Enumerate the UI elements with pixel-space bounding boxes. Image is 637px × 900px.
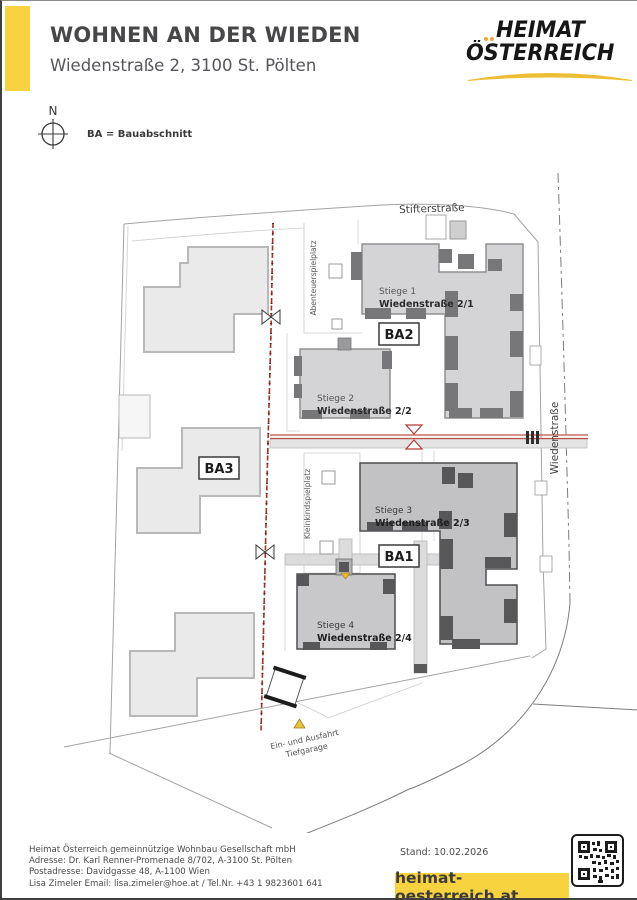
site-plan: Stiege 1 Wiedenstraße 2/1 Stiege 2 Wiede… xyxy=(2,161,637,833)
street-label-stifterstrasse: Stifterstraße xyxy=(399,202,465,216)
company-logo: HEIMAT ÖSTERREICH xyxy=(466,19,634,88)
website-label: heimat-oesterreich.at xyxy=(395,869,569,900)
stiege4-name: Stiege 4 xyxy=(317,621,354,631)
stiege1-name: Stiege 1 xyxy=(379,287,416,297)
footer-postal: Postadresse: Davidgasse 48, A-1100 Wien xyxy=(29,867,323,878)
stiege2-address: Wiedenstraße 2/2 xyxy=(317,406,412,417)
footer-company-block: Heimat Österreich gemeinnützige Wohnbau … xyxy=(29,845,323,890)
garage-marker-icon xyxy=(294,719,305,728)
qr-code xyxy=(571,834,624,887)
phase-box-ba2: BA2 xyxy=(379,323,419,345)
area-label-toddler-playground: Kleinkindspielplatz xyxy=(303,469,312,539)
stiege3-address: Wiedenstraße 2/3 xyxy=(375,518,470,529)
website-link[interactable]: heimat-oesterreich.at xyxy=(395,873,569,900)
plan-date: Stand: 10.02.2026 xyxy=(400,847,488,858)
ba-abbreviation-note: BA = Bauabschnitt xyxy=(87,129,192,140)
street-label-wiedenstrasse: Wiedenstraße xyxy=(549,402,561,475)
logo-swoosh-icon xyxy=(466,70,634,82)
building-stiege2: Stiege 2 Wiedenstraße 2/2 xyxy=(294,338,412,419)
footer-contact: Lisa Zimeler Email: lisa.zimeler@hoe.at … xyxy=(29,879,323,890)
garage-ramp: Ein- und Ausfahrt Tiefgarage xyxy=(264,666,342,762)
accent-bar xyxy=(5,6,30,91)
phase-label-ba2: BA2 xyxy=(384,328,413,343)
page-subtitle: Wiedenstraße 2, 3100 St. Pölten xyxy=(50,56,316,75)
plan-page: WOHNEN AN DER WIEDEN Wiedenstraße 2, 310… xyxy=(0,0,637,900)
compass-north-label: N xyxy=(49,104,58,118)
phase-box-ba1: BA1 xyxy=(379,545,419,567)
phase-box-ba3: BA3 xyxy=(199,457,239,479)
phase-bowtie-icon xyxy=(406,425,422,449)
area-label-adventure-playground: Abenteuerspielplatz xyxy=(309,240,318,315)
stiege3-name: Stiege 3 xyxy=(375,506,412,516)
footer-address: Adresse: Dr. Karl Renner-Promenade 8/702… xyxy=(29,856,323,867)
logo-line1: HEIMAT xyxy=(496,19,627,42)
phase-label-ba3: BA3 xyxy=(204,462,233,477)
phase-label-ba1: BA1 xyxy=(384,550,413,565)
compass-icon: N xyxy=(32,101,82,156)
stiege1-address: Wiedenstraße 2/1 xyxy=(379,299,474,310)
footer-company: Heimat Österreich gemeinnützige Wohnbau … xyxy=(29,845,323,856)
page-title: WOHNEN AN DER WIEDEN xyxy=(50,23,360,47)
stiege4-address: Wiedenstraße 2/4 xyxy=(317,633,412,644)
logo-line2: ÖSTERREICH xyxy=(466,42,626,65)
stiege2-name: Stiege 2 xyxy=(317,394,354,404)
